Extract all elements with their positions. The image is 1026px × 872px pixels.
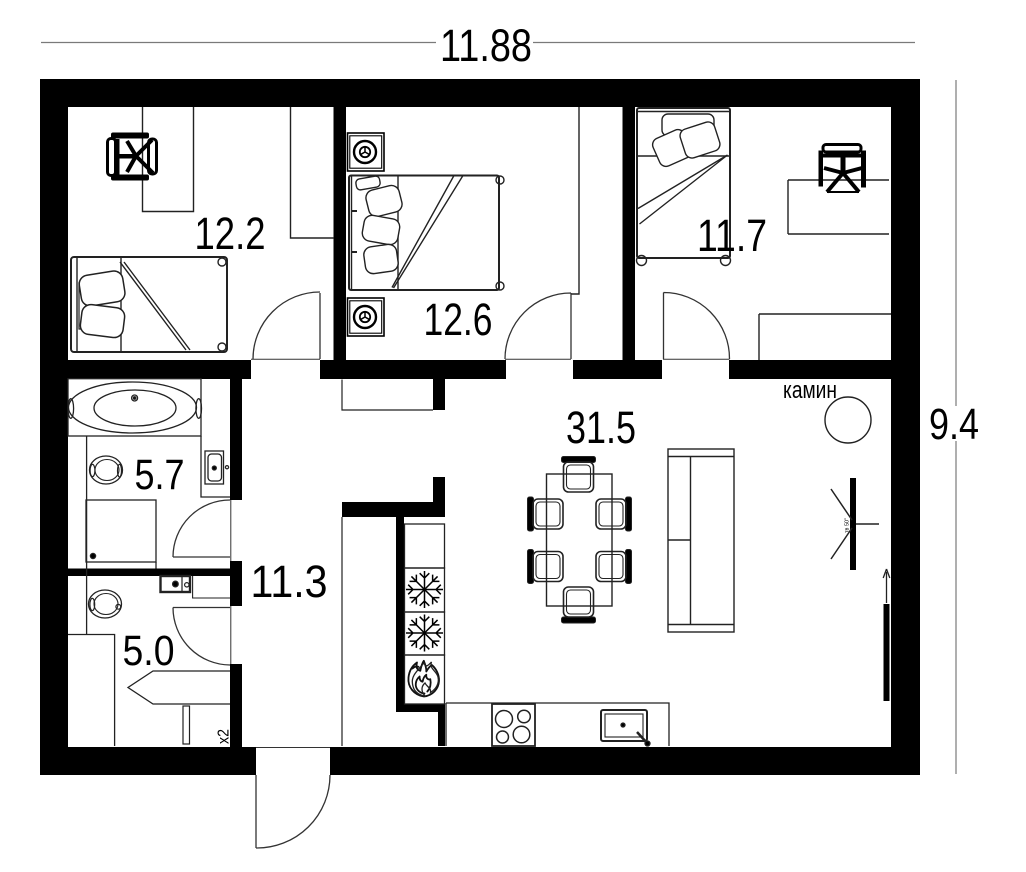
svg-text:11.88: 11.88 bbox=[440, 20, 532, 71]
svg-text:тв 50": тв 50" bbox=[845, 518, 851, 533]
svg-text:12.2: 12.2 bbox=[195, 208, 266, 259]
svg-text:x2: x2 bbox=[216, 729, 233, 744]
svg-text:11.3: 11.3 bbox=[251, 556, 328, 607]
svg-text:9.4: 9.4 bbox=[929, 400, 979, 449]
svg-text:камин: камин bbox=[783, 377, 837, 404]
svg-text:11.7: 11.7 bbox=[697, 210, 767, 261]
svg-text:12.6: 12.6 bbox=[424, 294, 493, 345]
svg-text:31.5: 31.5 bbox=[566, 402, 636, 453]
svg-text:5.7: 5.7 bbox=[135, 451, 185, 499]
svg-text:5.0: 5.0 bbox=[123, 627, 175, 675]
